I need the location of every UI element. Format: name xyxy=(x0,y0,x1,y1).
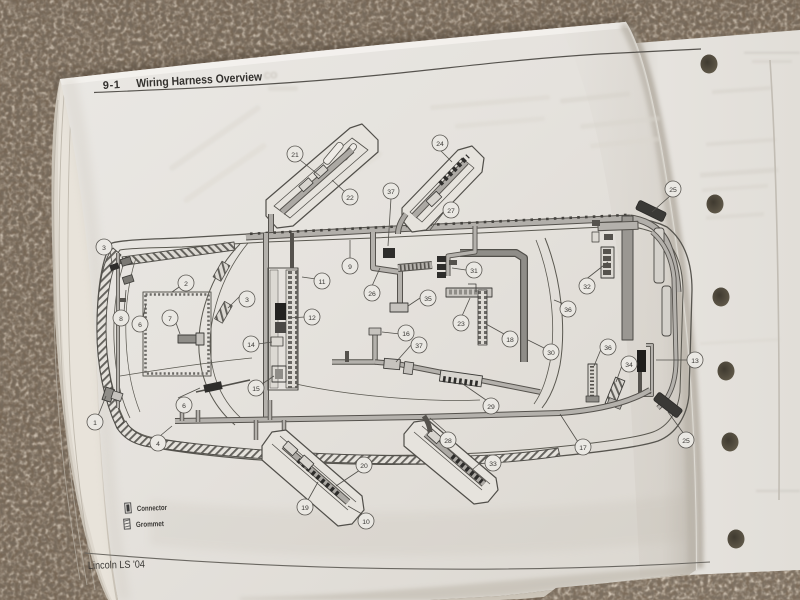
svg-text:12: 12 xyxy=(308,315,316,322)
svg-text:20: 20 xyxy=(360,463,368,470)
svg-text:Connector: Connector xyxy=(137,503,167,513)
svg-text:37: 37 xyxy=(387,189,395,196)
svg-text:26: 26 xyxy=(368,291,376,298)
svg-text:36: 36 xyxy=(604,345,612,352)
svg-text:33: 33 xyxy=(489,461,497,468)
svg-text:7: 7 xyxy=(168,316,172,323)
svg-text:36: 36 xyxy=(564,307,572,314)
svg-text:22: 22 xyxy=(346,195,354,202)
svg-text:19: 19 xyxy=(301,505,309,512)
svg-text:9: 9 xyxy=(348,264,352,271)
svg-text:3: 3 xyxy=(102,245,106,252)
svg-text:6: 6 xyxy=(138,322,142,329)
svg-text:Grommet: Grommet xyxy=(136,519,165,529)
svg-text:27: 27 xyxy=(447,208,455,215)
svg-text:21: 21 xyxy=(291,152,299,159)
svg-text:11: 11 xyxy=(318,279,325,286)
svg-text:10: 10 xyxy=(362,519,370,526)
svg-text:Lincoln LS '04: Lincoln LS '04 xyxy=(88,559,145,572)
svg-text:14: 14 xyxy=(247,342,255,349)
svg-text:8: 8 xyxy=(119,316,123,323)
svg-text:30: 30 xyxy=(547,350,555,357)
svg-text:28: 28 xyxy=(444,438,452,445)
svg-text:9-1: 9-1 xyxy=(103,79,121,92)
svg-text:1: 1 xyxy=(93,420,97,427)
svg-text:18: 18 xyxy=(506,337,514,344)
svg-text:34: 34 xyxy=(625,362,633,369)
svg-text:37: 37 xyxy=(415,343,423,350)
svg-text:32: 32 xyxy=(583,284,591,291)
svg-text:25: 25 xyxy=(682,438,690,445)
svg-text:6: 6 xyxy=(182,403,186,410)
svg-text:29: 29 xyxy=(487,404,495,411)
svg-text:13: 13 xyxy=(691,358,699,365)
svg-text:16: 16 xyxy=(402,331,410,338)
svg-text:31: 31 xyxy=(470,268,478,275)
svg-text:2: 2 xyxy=(184,281,188,288)
svg-text:CO: CO xyxy=(264,70,278,81)
svg-text:4: 4 xyxy=(156,441,160,448)
svg-text:24: 24 xyxy=(436,141,444,148)
svg-text:25: 25 xyxy=(669,187,677,194)
svg-text:3: 3 xyxy=(245,297,249,304)
svg-text:35: 35 xyxy=(424,296,432,303)
svg-text:23: 23 xyxy=(457,321,465,328)
svg-text:17: 17 xyxy=(579,445,587,452)
svg-text:15: 15 xyxy=(252,386,260,393)
